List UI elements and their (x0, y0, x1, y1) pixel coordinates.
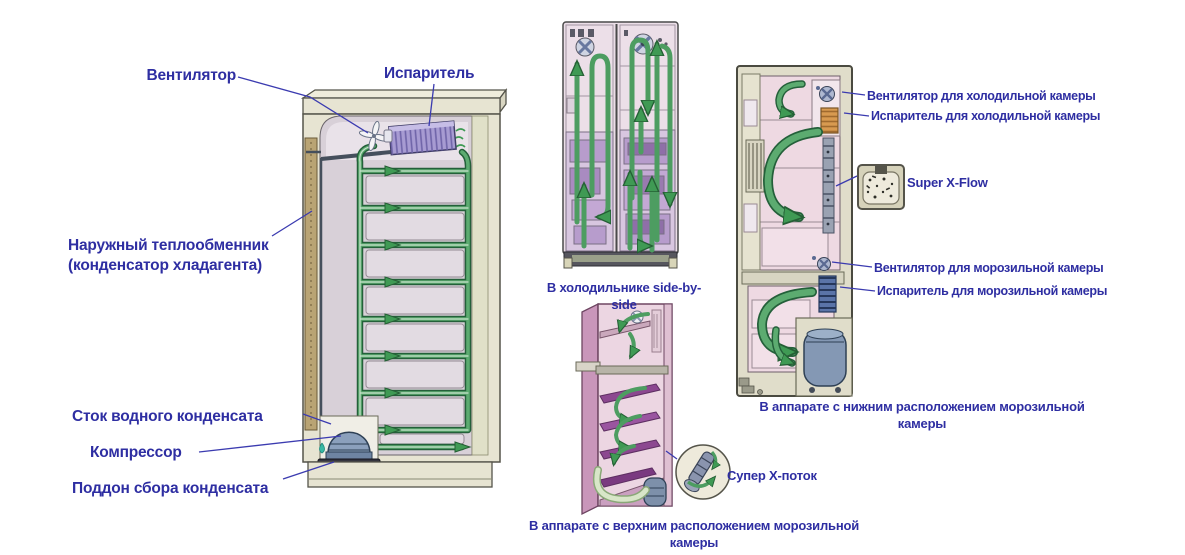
refrigerator-airflow-diagram: Вентилятор Испаритель Наружный теплообме… (0, 0, 1185, 555)
label-freezer-fan: Вентилятор для морозильной камеры (874, 260, 1103, 277)
caption-side-by-side: В холодильнике side-by-side (538, 279, 710, 313)
bf-freezer-evaporator-icon (819, 276, 836, 312)
label-fan: Вентилятор (98, 66, 236, 86)
caption-top-freezer: В аппарате с верхним расположением мороз… (508, 517, 880, 551)
label-evaporator: Испаритель (384, 64, 474, 84)
bf-xflow-duct (823, 138, 834, 233)
bf-vent-grille (746, 140, 764, 192)
label-super-x-flow: Super X-Flow (907, 174, 988, 191)
label-super-x-potok: Супер X-поток (727, 467, 817, 484)
top-freezer-fridge-drawing (576, 304, 730, 514)
upright-fridge-drawing (303, 90, 506, 487)
super-x-flow-icon (858, 165, 904, 209)
label-fridge-evaporator: Испаритель для холодильной камеры (871, 108, 1100, 125)
label-drain: Сток водного конденсата (72, 407, 263, 427)
condenser-strip (305, 138, 317, 430)
side-by-side-fridge-drawing (563, 22, 678, 268)
shelves (366, 176, 464, 444)
label-freezer-evaporator: Испаритель для морозильной камеры (877, 283, 1107, 300)
super-x-flow-inset (676, 445, 730, 499)
label-heat-exchanger: Наружный теплообменник (конденсатор хлад… (68, 236, 269, 277)
label-compressor: Компрессор (90, 443, 182, 463)
bf-compressor-drawing (796, 318, 852, 396)
evaporator-box (389, 121, 456, 155)
label-drip-tray: Поддон сбора конденсата (72, 479, 268, 499)
bf-fridge-evaporator-icon (821, 108, 838, 133)
label-fridge-fan: Вентилятор для холодильной камеры (867, 88, 1096, 105)
caption-bottom-freezer: В аппарате с нижним расположением морози… (735, 398, 1109, 432)
